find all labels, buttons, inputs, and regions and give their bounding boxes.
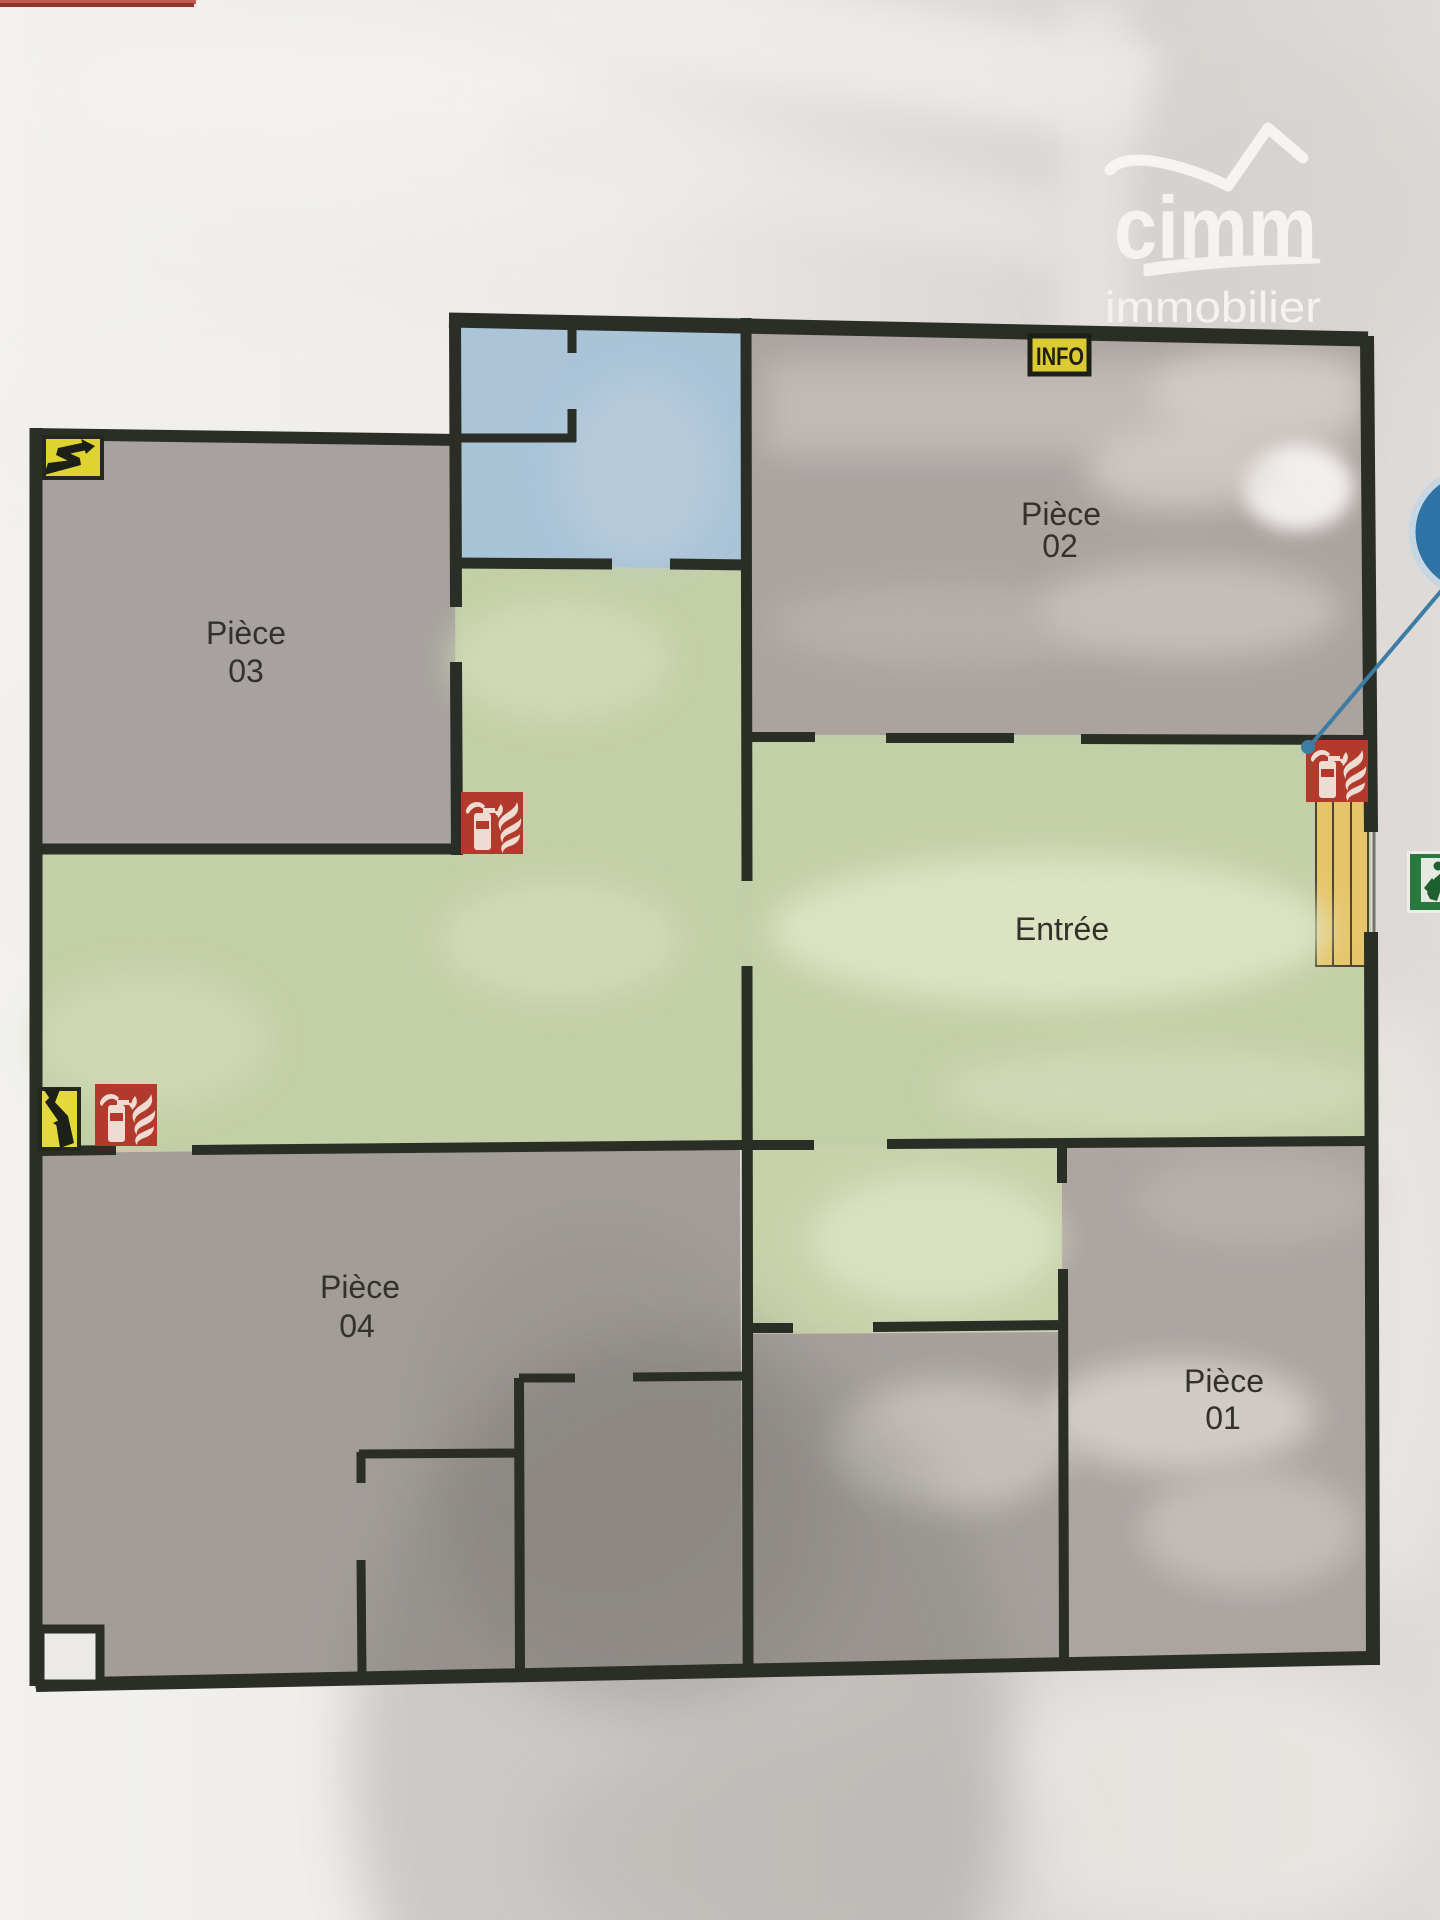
svg-text:INFO: INFO	[1036, 343, 1084, 371]
svg-text:01: 01	[1205, 1400, 1241, 1436]
svg-text:Pièce: Pièce	[320, 1269, 400, 1305]
svg-text:04: 04	[339, 1308, 375, 1344]
svg-text:immobilier: immobilier	[1105, 283, 1321, 332]
svg-text:02: 02	[1042, 528, 1078, 564]
svg-text:03: 03	[228, 653, 264, 689]
svg-text:Pièce: Pièce	[1184, 1363, 1264, 1399]
svg-text:Entrée: Entrée	[1015, 911, 1109, 947]
svg-text:Pièce: Pièce	[206, 615, 286, 651]
svg-text:Pièce: Pièce	[1021, 496, 1101, 532]
